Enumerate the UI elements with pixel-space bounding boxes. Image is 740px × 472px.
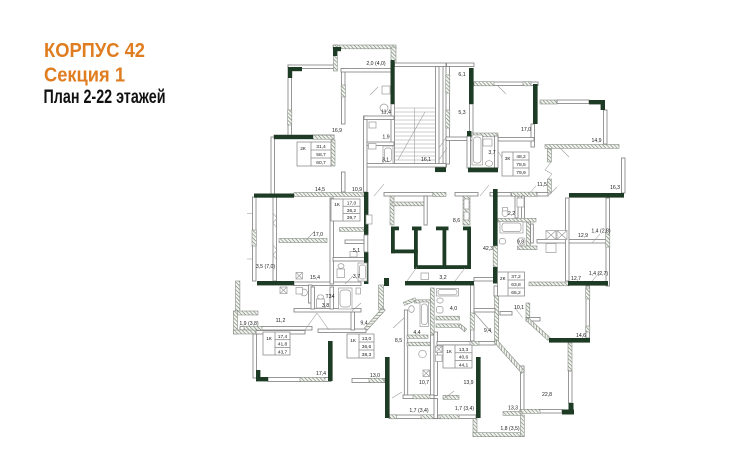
svg-text:3,7: 3,7 (488, 150, 495, 156)
svg-text:13,3: 13,3 (508, 406, 518, 412)
svg-text:2К: 2К (300, 146, 306, 152)
svg-text:16,1: 16,1 (421, 157, 431, 163)
svg-text:КОРПУС 42: КОРПУС 42 (44, 39, 145, 62)
svg-text:78,5: 78,5 (516, 162, 526, 168)
svg-text:1,4 (2,8): 1,4 (2,8) (591, 229, 611, 235)
svg-text:1К: 1К (266, 336, 272, 342)
svg-text:12,7: 12,7 (571, 276, 581, 282)
svg-text:38,3: 38,3 (362, 352, 372, 358)
svg-text:65,2: 65,2 (511, 290, 521, 296)
svg-text:Т34: Т34 (326, 294, 335, 300)
svg-text:16,9: 16,9 (332, 128, 342, 134)
svg-text:1К: 1К (446, 349, 452, 355)
svg-text:17,0: 17,0 (521, 127, 531, 133)
svg-text:3,1: 3,1 (382, 158, 389, 164)
svg-text:10,1: 10,1 (514, 305, 524, 311)
svg-text:11,4: 11,4 (381, 110, 391, 116)
svg-text:1К: 1К (334, 202, 340, 208)
svg-text:3К: 3К (505, 156, 511, 162)
svg-text:43,7: 43,7 (278, 349, 288, 355)
svg-text:9,4: 9,4 (484, 328, 491, 334)
svg-text:40,6: 40,6 (459, 355, 469, 361)
svg-text:2,2: 2,2 (508, 211, 515, 217)
svg-text:13,3: 13,3 (459, 347, 469, 353)
svg-text:42,3: 42,3 (483, 246, 493, 252)
svg-text:3,5 (7,0): 3,5 (7,0) (256, 264, 276, 270)
svg-text:12,9: 12,9 (578, 233, 588, 239)
svg-text:13,0: 13,0 (370, 373, 380, 379)
svg-text:1,9: 1,9 (382, 135, 389, 141)
svg-text:58,7: 58,7 (316, 152, 326, 158)
svg-text:1,7 (3,4): 1,7 (3,4) (455, 406, 475, 412)
svg-text:13,0: 13,0 (362, 336, 372, 342)
svg-text:17,0: 17,0 (313, 232, 323, 238)
svg-text:17,4: 17,4 (316, 371, 326, 377)
svg-text:36,6: 36,6 (362, 344, 372, 350)
svg-text:8,6: 8,6 (453, 218, 460, 224)
svg-text:37,2: 37,2 (511, 274, 521, 280)
svg-text:4,0: 4,0 (450, 306, 457, 312)
svg-text:10,7: 10,7 (419, 380, 429, 386)
svg-text:9,4: 9,4 (360, 321, 367, 327)
svg-text:2,0 (4,0): 2,0 (4,0) (366, 61, 386, 67)
svg-text:31,4: 31,4 (316, 144, 326, 150)
svg-text:13,9: 13,9 (463, 380, 473, 386)
svg-text:36,2: 36,2 (347, 208, 357, 214)
svg-text:44,1: 44,1 (459, 362, 469, 368)
svg-text:41,8: 41,8 (278, 342, 288, 348)
svg-text:Секция 1: Секция 1 (44, 64, 125, 87)
svg-text:11,5: 11,5 (537, 182, 547, 188)
svg-text:План 2-22 этажей: План 2-22 этажей (44, 87, 166, 108)
svg-text:3,8: 3,8 (322, 303, 329, 309)
svg-text:9,8: 9,8 (517, 240, 524, 246)
svg-text:17,0: 17,0 (347, 201, 357, 207)
svg-text:10,9: 10,9 (352, 187, 362, 193)
svg-text:6,1: 6,1 (458, 72, 465, 78)
svg-text:11,2: 11,2 (276, 318, 286, 324)
svg-text:14,6: 14,6 (576, 333, 586, 339)
svg-text:17,4: 17,4 (278, 334, 288, 340)
svg-text:3,2: 3,2 (439, 275, 446, 281)
svg-text:60,7: 60,7 (316, 160, 326, 166)
svg-text:5,3: 5,3 (458, 110, 465, 116)
svg-text:39,7: 39,7 (347, 215, 357, 221)
svg-text:2К: 2К (500, 276, 506, 282)
svg-text:14,9: 14,9 (591, 138, 601, 144)
svg-text:1,4 (2,7): 1,4 (2,7) (589, 271, 609, 277)
svg-text:22,8: 22,8 (542, 392, 552, 398)
svg-text:1,9 (3,8): 1,9 (3,8) (239, 321, 259, 327)
svg-text:79,9: 79,9 (516, 170, 526, 176)
svg-text:3,7: 3,7 (353, 274, 360, 280)
svg-text:1,8 (3,5): 1,8 (3,5) (500, 426, 520, 432)
svg-text:4,4: 4,4 (413, 330, 420, 336)
svg-text:1,7 (3,4): 1,7 (3,4) (409, 408, 429, 414)
svg-text:8,5: 8,5 (395, 338, 402, 344)
svg-text:1К: 1К (350, 338, 356, 344)
svg-text:14,5: 14,5 (315, 187, 325, 193)
svg-text:63,8: 63,8 (511, 282, 521, 288)
svg-text:15,4: 15,4 (310, 275, 320, 281)
svg-text:5,1: 5,1 (353, 248, 360, 254)
svg-text:48,2: 48,2 (516, 154, 526, 160)
svg-text:16,3: 16,3 (610, 185, 620, 191)
